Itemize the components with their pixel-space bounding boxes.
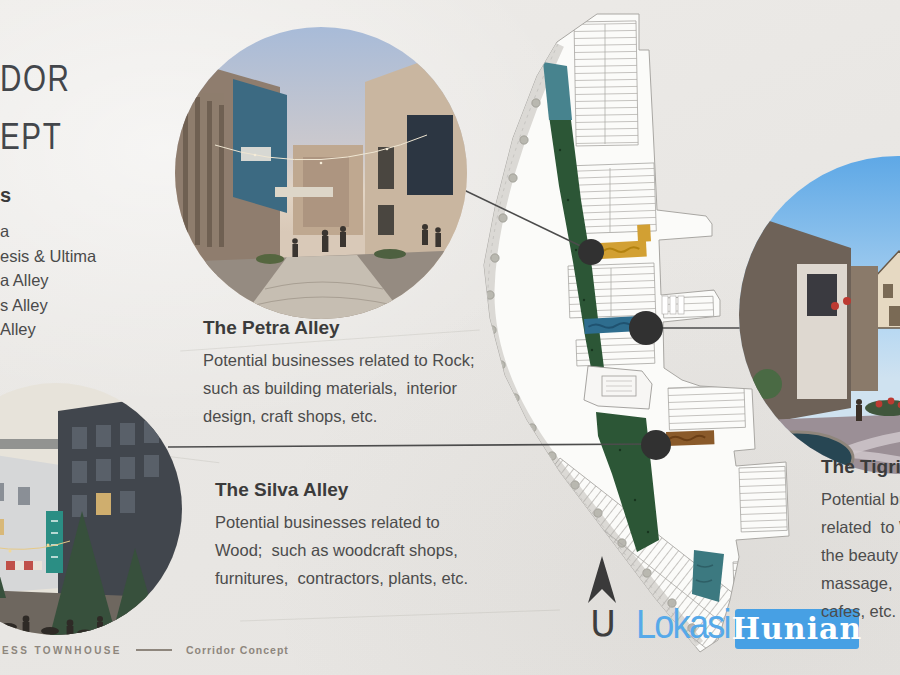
silva-heading: The Silva Alley bbox=[215, 479, 468, 501]
petra-body-line: design, craft shops, etc. bbox=[203, 402, 475, 430]
tigris-body-line: related to W bbox=[821, 513, 900, 541]
slide-title-line1: DOR bbox=[0, 50, 71, 108]
tigris-callout: The Tigris Potential bu related to W the… bbox=[821, 456, 900, 625]
footer-series-label: ESS TOWNHOUSE bbox=[2, 645, 122, 656]
legend-heading: s bbox=[0, 184, 11, 207]
logo-lokasi-text: Lokasi bbox=[636, 601, 730, 648]
slide: DOR EPT s a esis & Ultima a Alley s Alle… bbox=[0, 0, 900, 675]
legend-item: a bbox=[0, 219, 96, 244]
tigris-body-line: Potential bu bbox=[821, 485, 900, 513]
silva-alley-strip bbox=[666, 430, 714, 446]
legend-item: s Alley bbox=[0, 293, 96, 318]
tigris-heading: The Tigris bbox=[821, 456, 900, 478]
silva-body-line: furnitures, contractors, plants, etc. bbox=[215, 564, 468, 592]
petra-body-line: such as building materials, interior bbox=[203, 374, 475, 402]
clubhouse-footprint bbox=[584, 366, 652, 409]
petra-alley-photo bbox=[175, 27, 467, 319]
compass-north-label: U bbox=[586, 604, 620, 644]
silva-body-line: Potential businesses related to bbox=[215, 508, 468, 536]
legend-item: Alley bbox=[0, 317, 96, 342]
petra-body-line: Potential businesses related to Rock; bbox=[203, 346, 475, 374]
footer-divider-line bbox=[136, 649, 172, 651]
slide-title: DOR EPT bbox=[0, 50, 71, 166]
tigris-alley-marker bbox=[629, 311, 663, 345]
petra-callout: The Petra Alley Potential businesses rel… bbox=[203, 317, 475, 430]
north-arrow-icon bbox=[588, 556, 616, 603]
silva-body-line: Wood; such as woodcraft shops, bbox=[215, 536, 468, 564]
petra-heading: The Petra Alley bbox=[203, 317, 475, 339]
teal-feature-south bbox=[692, 550, 724, 602]
footer-section-label: Corridor Concept bbox=[186, 644, 289, 656]
alley-legend-list: a esis & Ultima a Alley s Alley Alley bbox=[0, 219, 96, 342]
silva-alley-marker bbox=[641, 430, 671, 460]
tigris-body-line: the beauty bbox=[821, 541, 900, 569]
tigris-body-line: massage, r bbox=[821, 569, 900, 597]
footer: ESS TOWNHOUSE Corridor Concept bbox=[2, 644, 289, 656]
legend-item: a Alley bbox=[0, 268, 96, 293]
slide-title-line2: EPT bbox=[0, 108, 71, 166]
legend-item: esis & Ultima bbox=[0, 244, 96, 269]
tigris-body-line: cafes, etc. bbox=[821, 597, 900, 625]
petra-alley-marker bbox=[578, 239, 604, 265]
silva-callout: The Silva Alley Potential businesses rel… bbox=[215, 479, 468, 592]
